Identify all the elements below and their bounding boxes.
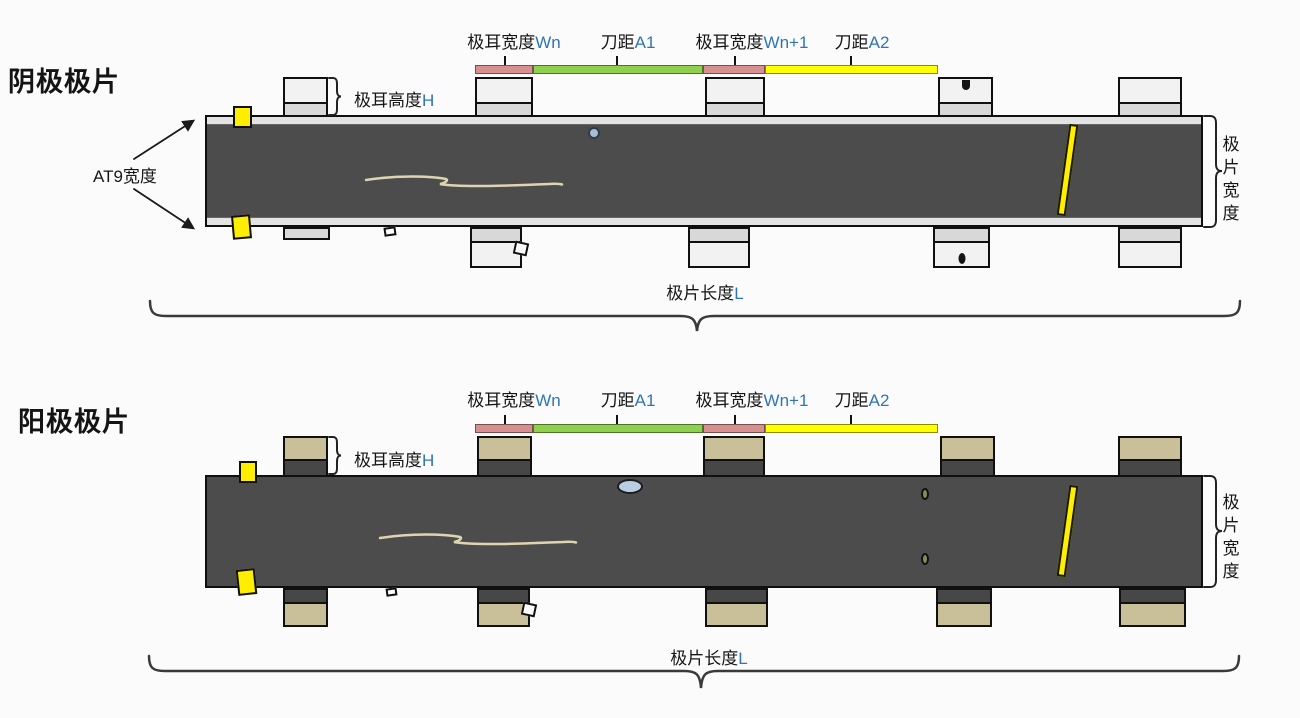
anode-knife-a2-label-accent: A2 [869,391,890,410]
anode-sheet-width-label: 极 片 宽 度 [1221,491,1241,583]
cathode-tab-width-wn1-bar [703,65,765,74]
anode-tab-height-label-base: 极耳高度 [354,451,422,470]
anode-tab-width-wn1-label-base: 极耳宽度 [696,391,764,410]
cathode-bottom-tab-3-joint [690,229,748,243]
anode-knife-a1-bar [533,424,703,433]
anode-bottom-tab-1-joint [285,590,326,604]
anode-tab-width-wn-label-accent: Wn [535,391,561,410]
anode-knife-a1-label-base: 刀距 [601,391,635,410]
anode-sheet-length-label-base: 极片长度 [670,649,738,668]
anode-tab-height-bracket [329,437,341,474]
anode-sheet-length-label-accent: L [738,649,747,668]
anode-top-tab-1-joint [285,459,326,475]
anode-bottom-tab-1 [283,588,328,627]
anode-tab-width-wn-bar-tick [504,415,506,424]
anode-sheet-width-bracket [1204,476,1222,587]
cathode-knife-a1-label-base: 刀距 [601,33,635,52]
cathode-bottom-tab-2-joint [472,229,520,243]
cathode-tab-height-bracket [329,78,341,115]
annotation-overlay [0,0,1300,718]
anode-knife-a2-bar-tick [850,415,852,424]
cathode-top-tab-5-joint [1120,102,1180,115]
cathode-top-tab-1 [283,77,328,117]
anode-bottom-tab-4-joint [938,590,990,604]
edge-notch-mark [385,587,397,596]
cathode-tab-height-label-accent: H [422,91,434,110]
anode-sheet-strip [205,475,1203,588]
cathode-knife-a1-label: 刀距A1 [601,28,656,53]
anode-bottom-tab-5 [1119,588,1186,627]
cathode-bottom-tab-5-joint [1120,229,1180,243]
anode-bottom-tab-4 [936,588,992,627]
anode-bottom-tab-3 [705,588,768,627]
anode-top-tab-4 [940,436,995,477]
cathode-knife-a2-label-base: 刀距 [835,33,869,52]
anode-knife-a1-label-accent: A1 [635,391,656,410]
anode-knife-a2-label-base: 刀距 [835,391,869,410]
anode-bottom-tab-5-joint [1121,590,1184,604]
anode-bottom-tab-3-joint [707,590,766,604]
cathode-bottom-tab-4-joint [935,229,988,243]
anode-tab-height-label-accent: H [422,451,434,470]
anode-tab-height-label: 极耳高度H [354,446,434,471]
electrode-sheet-diagram-canvas: 阴极极片 阳极极片 极耳宽度Wn刀距A1极耳宽度Wn+1刀距A2极耳高度H极片长… [0,0,1300,718]
at9-width-arrow-1 [134,121,193,159]
cathode-top-tab-2-joint [477,102,531,115]
anode-top-tab-5-joint [1120,459,1180,475]
cathode-knife-a2-bar-tick [850,56,852,65]
anode-edge-marker-top [239,461,257,483]
cathode-bottom-tab-3 [688,227,750,268]
anode-knife-a2-label: 刀距A2 [835,386,890,411]
cathode-top-tab-3 [705,77,765,117]
anode-knife-a2-bar [765,424,938,433]
cathode-tab-width-wn1-label-accent: Wn+1 [764,33,809,52]
cathode-strip-bottom-edge [207,217,1201,225]
punch-hole-mark [958,253,965,264]
anode-knife-a1-bar-tick [616,415,618,424]
cathode-tab-height-label-base: 极耳高度 [354,91,422,110]
anode-tab-width-wn-label-base: 极耳宽度 [467,391,535,410]
anode-top-tab-2-joint [479,459,530,475]
cathode-knife-a1-bar-tick [616,56,618,65]
anode-tab-width-wn-label: 极耳宽度Wn [467,386,561,411]
coating-defect-mark [617,479,643,494]
cathode-edge-marker-top [233,106,252,128]
cathode-sheet-strip [205,115,1203,227]
cathode-bottom-tab-4 [933,227,990,268]
cathode-knife-a1-bar [533,65,703,74]
anode-top-tab-2 [477,436,532,477]
cathode-sheet-width-label: 极 片 宽 度 [1221,133,1241,225]
cathode-top-tab-5 [1118,77,1182,117]
cathode-tab-width-wn-label: 极耳宽度Wn [467,28,561,53]
anode-top-tab-1 [283,436,328,477]
cathode-strip-top-edge [207,117,1201,125]
cathode-tab-height-label: 极耳高度H [354,86,434,111]
cathode-edge-marker-bottom [231,214,252,240]
anode-knife-a1-label: 刀距A1 [601,386,656,411]
particle-defect-mark [921,553,929,565]
anode-title: 阳极极片 [18,400,130,439]
anode-top-tab-3 [703,436,765,477]
cathode-bottom-tab-1 [283,227,330,240]
cathode-knife-a2-label-accent: A2 [869,33,890,52]
cathode-sheet-length-label: 极片长度L [666,279,743,304]
anode-edge-marker-bottom [236,568,258,596]
cathode-sheet-length-brace [150,301,1240,331]
anode-tab-width-wn1-bar-tick [734,415,736,424]
anode-sheet-length-label: 极片长度L [670,644,747,669]
cathode-tab-width-wn-label-accent: Wn [535,33,561,52]
cathode-top-tab-2 [475,77,533,117]
at9-width-arrow-2 [134,189,193,228]
punch-hole-mark [962,80,970,90]
anode-tab-width-wn1-bar [703,424,765,433]
anode-top-tab-4-joint [942,459,993,475]
cathode-knife-a2-label: 刀距A2 [835,28,890,53]
cathode-tab-width-wn-label-base: 极耳宽度 [467,33,535,52]
pinhole-defect-mark [588,127,600,139]
cathode-top-tab-4 [938,77,993,117]
cathode-bottom-tab-5 [1118,227,1182,268]
cathode-tab-width-wn1-bar-tick [734,56,736,65]
edge-notch-mark [383,226,396,237]
particle-defect-mark [921,488,929,500]
cathode-tab-width-wn1-label: 极耳宽度Wn+1 [696,28,809,53]
cathode-knife-a2-bar [765,65,938,74]
cathode-top-tab-4-joint [940,102,991,115]
anode-tab-width-wn1-label-accent: Wn+1 [764,391,809,410]
cathode-tab-width-wn-bar [475,65,533,74]
cathode-sheet-width-bracket [1204,116,1222,227]
cathode-tab-width-wn-bar-tick [504,56,506,65]
cut-notch-mark [521,602,537,618]
cathode-top-tab-1-joint [285,102,326,115]
cut-notch-mark [513,241,529,257]
cathode-tab-width-wn1-label-base: 极耳宽度 [696,33,764,52]
cathode-sheet-length-label-base: 极片长度 [666,284,734,303]
anode-tab-width-wn1-label: 极耳宽度Wn+1 [696,386,809,411]
cathode-top-tab-3-joint [707,102,763,115]
at9-width-label: AT9宽度 [93,162,157,187]
cathode-knife-a1-label-accent: A1 [635,33,656,52]
anode-bottom-tab-2-joint [479,590,528,604]
anode-top-tab-3-joint [705,459,763,475]
anode-tab-width-wn-bar [475,424,533,433]
cathode-title: 阴极极片 [8,60,120,99]
anode-top-tab-5 [1118,436,1182,477]
cathode-sheet-length-label-accent: L [734,284,743,303]
